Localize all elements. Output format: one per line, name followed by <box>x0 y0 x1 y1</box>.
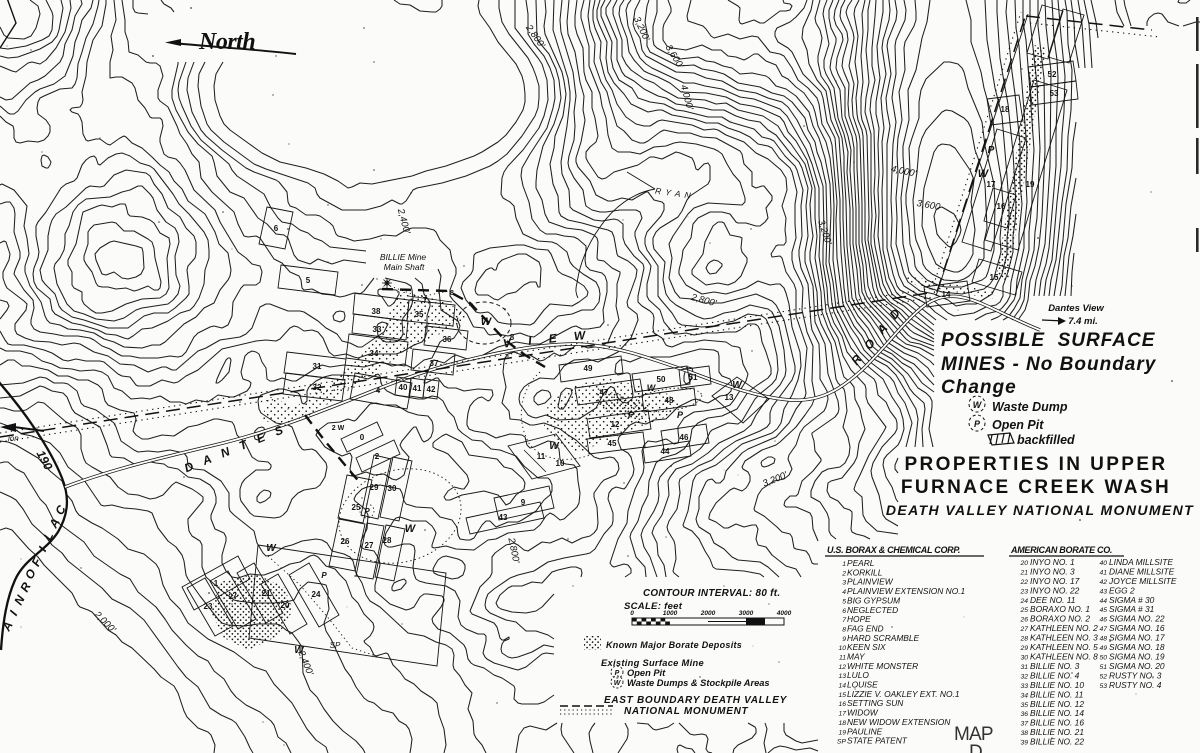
svg-text:45: 45 <box>1099 607 1107 614</box>
svg-text:31: 31 <box>1020 664 1028 671</box>
svg-text:46: 46 <box>1099 617 1107 624</box>
svg-text:33: 33 <box>1020 683 1028 690</box>
svg-text:SIGMA NO. 18: SIGMA NO. 18 <box>1109 642 1165 652</box>
svg-text:50: 50 <box>657 375 666 384</box>
svg-text:2 W: 2 W <box>332 425 345 432</box>
svg-text:4000: 4000 <box>776 610 792 617</box>
svg-text:51: 51 <box>1099 664 1107 671</box>
svg-text:31: 31 <box>313 362 322 371</box>
svg-text:29: 29 <box>370 483 379 492</box>
svg-text:20: 20 <box>1019 560 1028 567</box>
svg-text:10: 10 <box>838 645 846 652</box>
svg-text:DEATH VALLEY NATIONAL MONUMENT: DEATH VALLEY NATIONAL MONUMENT <box>886 502 1194 518</box>
svg-text:21: 21 <box>1019 570 1028 577</box>
svg-text:SP: SP <box>330 641 341 650</box>
svg-text:BILLIE NO. 11: BILLIE NO. 11 <box>1030 689 1083 699</box>
svg-text:BILLIE Mine: BILLIE Mine <box>380 252 427 262</box>
svg-text:KATHLEEN NO. 5: KATHLEEN NO. 5 <box>1030 642 1098 652</box>
svg-text:23: 23 <box>204 602 213 611</box>
svg-text:7: 7 <box>842 617 846 624</box>
svg-text:35: 35 <box>415 310 424 319</box>
svg-text:2000: 2000 <box>700 610 716 617</box>
svg-text:SIGMA # 31: SIGMA # 31 <box>1109 604 1154 614</box>
svg-text:Known Major Borate Deposits: Known Major Borate Deposits <box>606 640 742 650</box>
svg-text:46: 46 <box>680 433 689 442</box>
svg-text:MINES - No Boundary: MINES - No Boundary <box>941 354 1157 375</box>
svg-text:1: 1 <box>842 561 846 568</box>
svg-text:PROPERTIES IN UPPER: PROPERTIES IN UPPER <box>904 454 1167 475</box>
svg-text:FURNACE CREEK WASH: FURNACE CREEK WASH <box>901 477 1171 498</box>
svg-text:11: 11 <box>537 452 546 461</box>
svg-text:BORAXO NO. 1: BORAXO NO. 1 <box>1030 604 1090 614</box>
svg-text:47: 47 <box>1099 626 1107 633</box>
svg-text:SIGMA NO. 16: SIGMA NO. 16 <box>1109 623 1165 633</box>
svg-text:20: 20 <box>281 601 290 610</box>
svg-text:27: 27 <box>365 541 374 550</box>
svg-text:LINDA MILLSITE: LINDA MILLSITE <box>1109 557 1173 567</box>
svg-text:18: 18 <box>1001 105 1010 114</box>
svg-text:STATE PATENT: STATE PATENT <box>847 736 908 746</box>
svg-text:NATIONAL MONUMENT: NATIONAL MONUMENT <box>624 706 748 717</box>
svg-text:30: 30 <box>388 484 397 493</box>
svg-text:Open Pit: Open Pit <box>627 668 666 678</box>
svg-text:W: W <box>978 168 990 180</box>
svg-text:P: P <box>364 507 370 516</box>
svg-text:16: 16 <box>997 202 1006 211</box>
svg-text:15: 15 <box>838 692 846 699</box>
svg-text:0: 0 <box>630 610 634 617</box>
svg-text:40: 40 <box>1099 560 1107 567</box>
svg-text:40: 40 <box>399 383 408 392</box>
svg-text:16: 16 <box>838 701 846 708</box>
svg-text:3000: 3000 <box>739 610 754 617</box>
svg-text:42: 42 <box>427 385 436 394</box>
svg-text:52: 52 <box>1099 673 1107 680</box>
svg-text:36: 36 <box>1020 711 1028 718</box>
svg-text:27: 27 <box>1019 626 1028 633</box>
svg-text:1: 1 <box>214 579 219 588</box>
svg-text:45: 45 <box>608 439 617 448</box>
svg-text:EAST BOUNDARY DEATH VALLEY: EAST BOUNDARY DEATH VALLEY <box>604 695 788 706</box>
svg-text:53: 53 <box>1099 683 1107 690</box>
svg-text:10: 10 <box>556 459 565 468</box>
svg-text:29: 29 <box>1019 645 1028 652</box>
svg-text:KATHLEEN NO. 2: KATHLEEN NO. 2 <box>1030 623 1098 633</box>
svg-text:W: W <box>481 316 493 328</box>
svg-text:1000: 1000 <box>663 610 678 617</box>
svg-text:48: 48 <box>665 396 674 405</box>
svg-text:26: 26 <box>341 537 350 546</box>
svg-text:5: 5 <box>306 276 311 285</box>
svg-text:39: 39 <box>1020 740 1028 747</box>
svg-text:6: 6 <box>842 608 846 615</box>
svg-text:5: 5 <box>842 598 846 605</box>
svg-text:W: W <box>405 523 417 535</box>
svg-text:Existing Surface Mine: Existing Surface Mine <box>601 658 704 668</box>
svg-text:41: 41 <box>413 384 422 393</box>
svg-text:33: 33 <box>373 325 382 334</box>
svg-text:INYO NO. 17: INYO NO. 17 <box>1030 576 1080 586</box>
svg-text:North: North <box>198 29 255 55</box>
svg-text:W: W <box>732 380 743 391</box>
svg-text:SP: SP <box>837 739 847 746</box>
svg-text:INYO NO. 1: INYO NO. 1 <box>1030 557 1075 567</box>
svg-text:17: 17 <box>838 711 846 718</box>
svg-text:14: 14 <box>838 683 846 690</box>
svg-text:37: 37 <box>1020 721 1028 728</box>
svg-text:44: 44 <box>1099 598 1107 605</box>
svg-text:24: 24 <box>312 590 321 599</box>
svg-text:W: W <box>266 543 277 554</box>
svg-text:35: 35 <box>1020 702 1028 709</box>
svg-text:KATHLEEN NO. 8: KATHLEEN NO. 8 <box>1030 652 1098 662</box>
svg-text:RUSTY NO. 4: RUSTY NO. 4 <box>1109 680 1162 690</box>
svg-text:6: 6 <box>274 224 279 233</box>
svg-text:8: 8 <box>450 290 454 297</box>
svg-text:15: 15 <box>990 273 999 282</box>
svg-text:19: 19 <box>838 729 846 736</box>
svg-text:49: 49 <box>1099 645 1107 652</box>
svg-text:CONTOUR INTERVAL: 80 ft.: CONTOUR INTERVAL: 80 ft. <box>643 588 780 599</box>
svg-text:28: 28 <box>383 536 392 545</box>
svg-text:P: P <box>974 419 981 429</box>
svg-text:32: 32 <box>313 383 322 392</box>
svg-text:4: 4 <box>376 386 381 395</box>
svg-text:24: 24 <box>1019 598 1028 605</box>
svg-text:44: 44 <box>661 447 670 456</box>
svg-text:0: 0 <box>360 433 365 442</box>
svg-text:backfilled: backfilled <box>1017 433 1075 447</box>
svg-text:41: 41 <box>1099 570 1107 577</box>
svg-text:14: 14 <box>942 290 951 299</box>
svg-text:BILLIE NO. 22: BILLIE NO. 22 <box>1030 737 1084 747</box>
svg-text:U.S. BORAX & CHEMICAL CORP.: U.S. BORAX & CHEMICAL CORP. <box>827 545 960 555</box>
svg-text:37: 37 <box>430 359 439 368</box>
svg-text:8: 8 <box>510 333 515 342</box>
svg-text:47: 47 <box>600 388 609 397</box>
svg-text:BILLIE NO. 16: BILLIE NO. 16 <box>1030 718 1084 728</box>
svg-text:Waste Dumps & Stockpile Areas: Waste Dumps & Stockpile Areas <box>627 678 770 688</box>
svg-text:25: 25 <box>1019 607 1028 614</box>
svg-text:P: P <box>988 145 995 156</box>
svg-text:BILLIE NO. 4: BILLIE NO. 4 <box>1030 670 1080 680</box>
svg-text:P: P <box>628 410 635 420</box>
svg-text:12: 12 <box>838 664 846 671</box>
svg-text:23: 23 <box>1019 588 1028 595</box>
svg-text:RUSTY NO. 3: RUSTY NO. 3 <box>1109 670 1162 680</box>
svg-text:11: 11 <box>839 655 846 662</box>
svg-text:13: 13 <box>838 673 846 680</box>
svg-text:13: 13 <box>725 393 734 402</box>
svg-text:P: P <box>321 571 327 580</box>
svg-text:43: 43 <box>1099 588 1107 595</box>
svg-text:43: 43 <box>499 513 508 522</box>
svg-text:17: 17 <box>987 180 996 189</box>
svg-text:P: P <box>677 410 684 420</box>
svg-text:9: 9 <box>842 636 846 643</box>
svg-text:4: 4 <box>842 589 846 596</box>
svg-text:19: 19 <box>1026 180 1035 189</box>
svg-text:12: 12 <box>611 420 620 429</box>
svg-text:Dantes View: Dantes View <box>1048 303 1104 314</box>
svg-text:51: 51 <box>689 373 698 382</box>
svg-text:2: 2 <box>841 570 846 577</box>
svg-text:SIGMA NO. 19: SIGMA NO. 19 <box>1109 652 1165 662</box>
svg-text:48: 48 <box>1099 636 1107 643</box>
svg-text:38: 38 <box>372 307 381 316</box>
svg-text:POSSIBLE SURFACE: POSSIBLE SURFACE <box>941 330 1156 351</box>
svg-text:38: 38 <box>1020 730 1028 737</box>
svg-text:Change: Change <box>941 377 1017 398</box>
svg-text:7.4 mi.: 7.4 mi. <box>1068 316 1098 327</box>
svg-text:30: 30 <box>1020 655 1028 662</box>
svg-text:25: 25 <box>352 503 361 512</box>
svg-text:50: 50 <box>1099 655 1107 662</box>
svg-text:8: 8 <box>842 627 846 634</box>
svg-text:Main Shaft: Main Shaft <box>384 262 425 272</box>
svg-text:7: 7 <box>423 296 428 305</box>
svg-text:18: 18 <box>838 720 846 727</box>
svg-text:JOYCE MILLSITE: JOYCE MILLSITE <box>1108 576 1177 586</box>
svg-text:53: 53 <box>1050 89 1059 98</box>
svg-text:D: D <box>969 742 983 753</box>
svg-text:42: 42 <box>1099 579 1107 586</box>
svg-text:36: 36 <box>443 335 452 344</box>
svg-text:AMERICAN BORATE CO.: AMERICAN BORATE CO. <box>1010 545 1112 555</box>
svg-text:32: 32 <box>1020 673 1028 680</box>
svg-text:Open Pit: Open Pit <box>992 418 1044 432</box>
svg-text:3: 3 <box>842 580 846 587</box>
svg-text:26: 26 <box>1019 617 1028 624</box>
svg-text:34: 34 <box>1020 692 1028 699</box>
svg-text:34: 34 <box>370 349 379 358</box>
svg-text:28: 28 <box>1019 636 1028 643</box>
svg-text:49: 49 <box>584 364 593 373</box>
svg-text:Waste Dump: Waste Dump <box>992 400 1068 414</box>
svg-text:22: 22 <box>1019 579 1028 586</box>
svg-text:52: 52 <box>1048 70 1057 79</box>
svg-text:W: W <box>549 441 560 452</box>
